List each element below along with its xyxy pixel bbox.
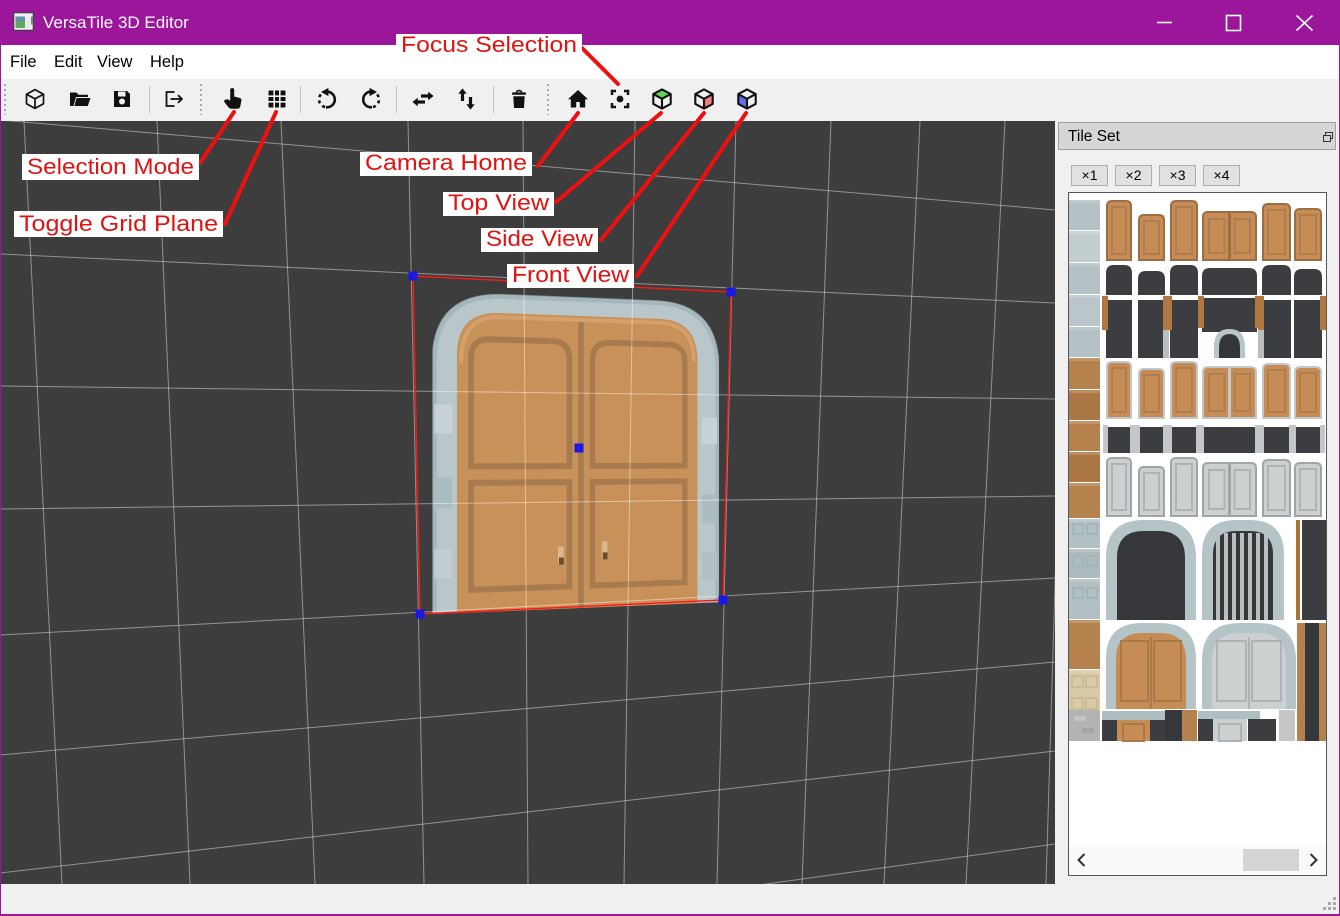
svg-text:Side View: Side View — [486, 226, 593, 251]
svg-text:Camera Home: Camera Home — [365, 150, 527, 175]
svg-text:Selection Mode: Selection Mode — [27, 154, 194, 179]
svg-text:Top View: Top View — [448, 190, 549, 215]
svg-text:Front View: Front View — [512, 262, 629, 287]
svg-text:Focus Selection: Focus Selection — [401, 32, 577, 57]
svg-text:Toggle Grid Plane: Toggle Grid Plane — [19, 211, 218, 236]
